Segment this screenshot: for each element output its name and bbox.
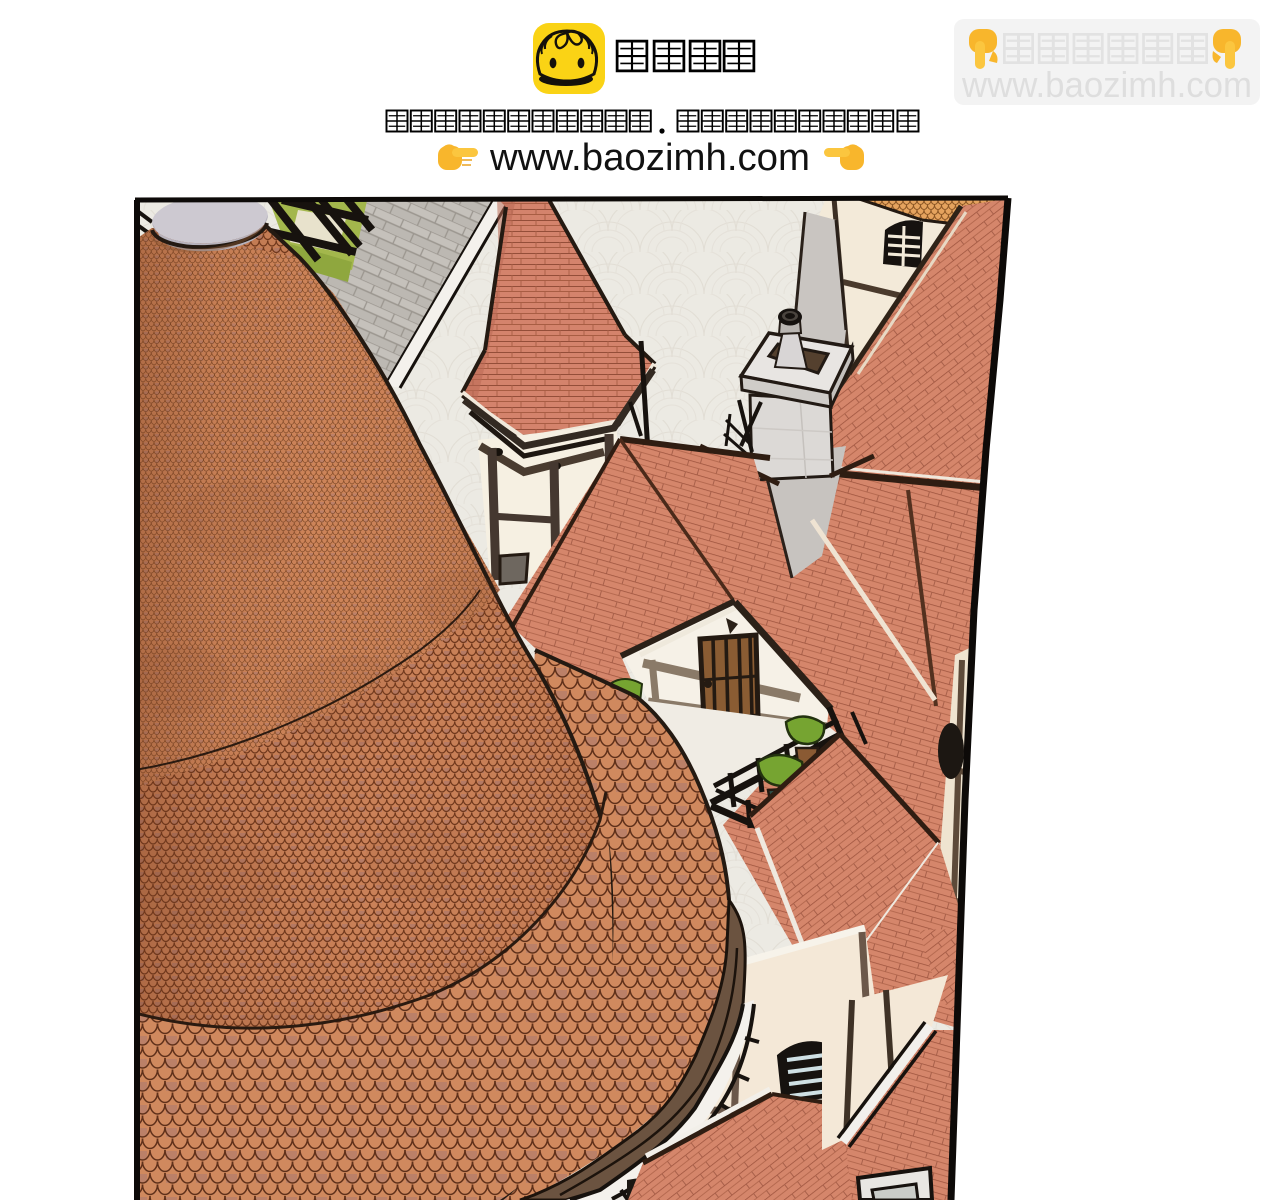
svg-text:www.baozimh.com: www.baozimh.com [961, 64, 1252, 105]
svg-text:www.baozimh.com: www.baozimh.com [489, 137, 810, 179]
